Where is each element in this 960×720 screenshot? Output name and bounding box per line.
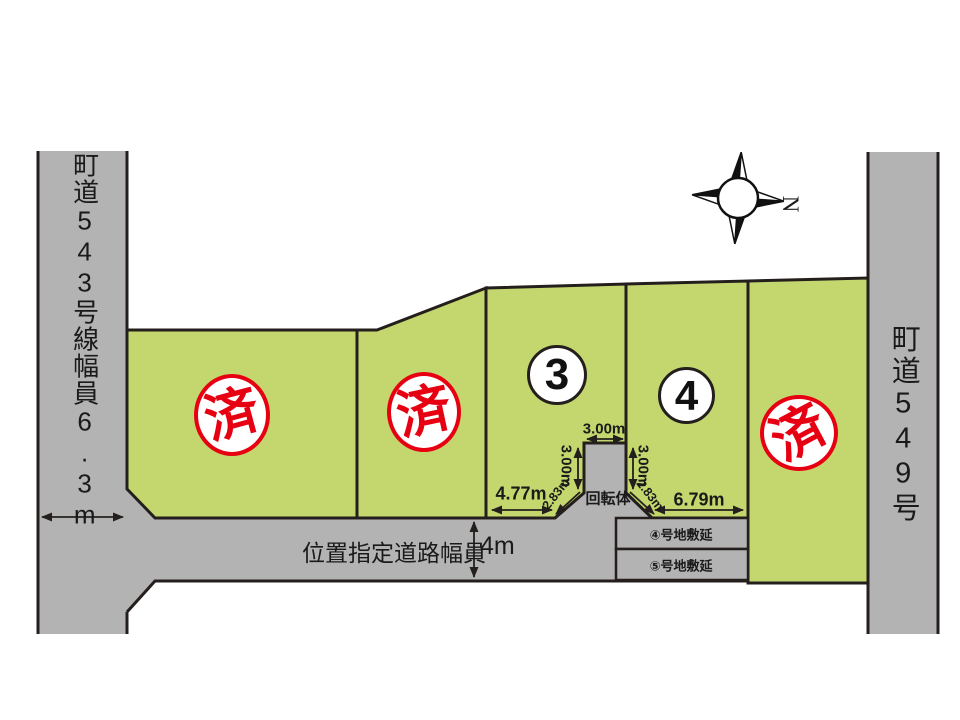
sold-stamp-lot2: 済 [387, 372, 461, 452]
left-road-label: 町道543号線幅員6.3m [70, 152, 97, 531]
lot-4-number-badge: 4 [658, 367, 715, 424]
site-plan-drawing [0, 0, 960, 720]
sold-stamp-lot5: 済 [760, 395, 838, 471]
extension-lot4-label: ④号地敷延 [649, 525, 712, 544]
turning-area-label: 回転体 [585, 488, 630, 509]
access-road-label: 位置指定道路幅員 [302, 534, 486, 568]
site-plan-canvas: 町道543号線幅員6.3m 町道549号 位置指定道路幅員 4m 3.00m 3… [0, 0, 960, 720]
extension-lot5-label: ⑤号地敷延 [649, 556, 712, 575]
right-road-label: 町道549号 [888, 324, 918, 525]
access-road-width-label: 4m [480, 532, 515, 561]
dim-lot4-frontage: 6.79m [673, 490, 724, 511]
compass-icon [689, 149, 787, 247]
compass-north-label: N [777, 196, 803, 213]
dim-lot3-frontage: 4.77m [495, 484, 546, 505]
dim-turning-top-width: 3.00m [583, 421, 626, 438]
sold-stamp-lot1: 済 [194, 374, 270, 456]
lot-3-number-badge: 3 [527, 345, 587, 405]
